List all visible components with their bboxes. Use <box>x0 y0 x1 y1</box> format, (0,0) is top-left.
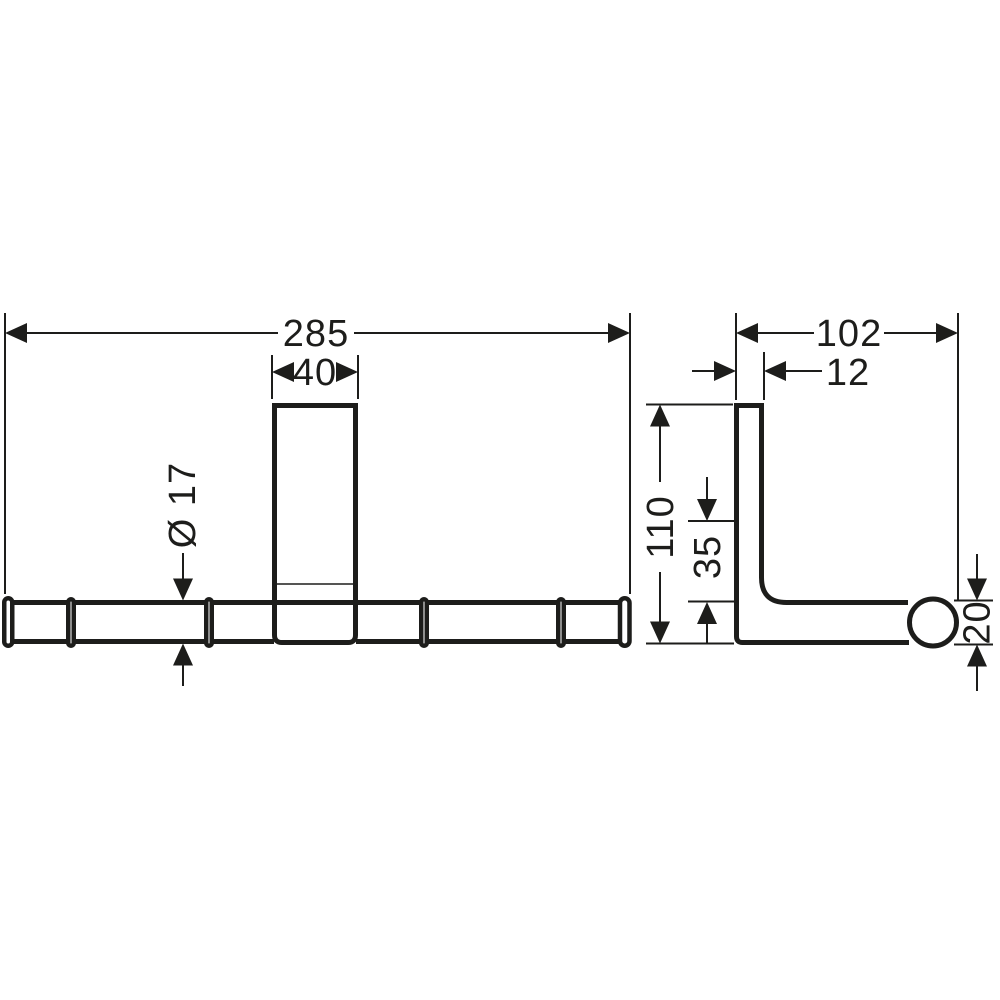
technical-drawing-page: 285 40 <box>0 0 1000 1000</box>
dim-label-plate-width: 40 <box>293 352 337 394</box>
arrowhead <box>736 323 758 343</box>
arrowhead <box>697 499 717 521</box>
arrowhead <box>697 602 717 624</box>
bracket-inner-contour <box>762 407 909 603</box>
arrowhead <box>714 361 736 381</box>
dim-label-plate-thickness: 12 <box>826 352 870 394</box>
arrowhead <box>936 323 958 343</box>
dim-plate-width: 40 <box>272 352 358 399</box>
dim-label-height: 110 <box>640 495 682 559</box>
arrowhead <box>5 323 27 343</box>
dim-end-cap-diameter: 20 <box>954 554 999 691</box>
dimension-drawing: 285 40 <box>0 0 1000 1000</box>
dim-hook-offset: 35 <box>687 477 734 644</box>
dim-bar-diameter: Ø 17 <box>162 462 204 686</box>
bar-ring <box>558 599 564 646</box>
arrowhead <box>967 579 987 601</box>
arrowhead <box>650 405 670 427</box>
bracket-side-profile <box>737 406 957 647</box>
front-view: 285 40 <box>4 313 630 686</box>
wall-plate-front <box>275 406 356 643</box>
bar-end-cap-right <box>620 598 630 646</box>
dim-label-depth: 102 <box>816 313 882 355</box>
bar-end-cross-section <box>910 599 957 646</box>
dim-height: 110 <box>640 405 734 644</box>
arrowhead <box>272 362 294 382</box>
arrowhead <box>173 579 193 601</box>
dim-label-overall-width: 285 <box>283 313 349 355</box>
bar-end-cap-left <box>4 598 12 646</box>
arrowhead <box>173 644 193 666</box>
arrowhead <box>764 361 786 381</box>
side-view: 102 12 110 <box>640 313 999 691</box>
bar-ring <box>206 599 212 646</box>
arrowhead <box>336 362 358 382</box>
arrowhead <box>650 622 670 644</box>
arrowhead <box>967 645 987 667</box>
dim-plate-thickness: 12 <box>692 352 870 400</box>
dim-label-bar-diameter: Ø 17 <box>162 462 204 548</box>
bar-ring <box>421 599 427 646</box>
arrowhead <box>608 323 630 343</box>
dim-label-hook-offset: 35 <box>687 535 729 579</box>
dim-label-end-cap-diameter: 20 <box>957 600 999 644</box>
bar-ring <box>68 599 74 646</box>
